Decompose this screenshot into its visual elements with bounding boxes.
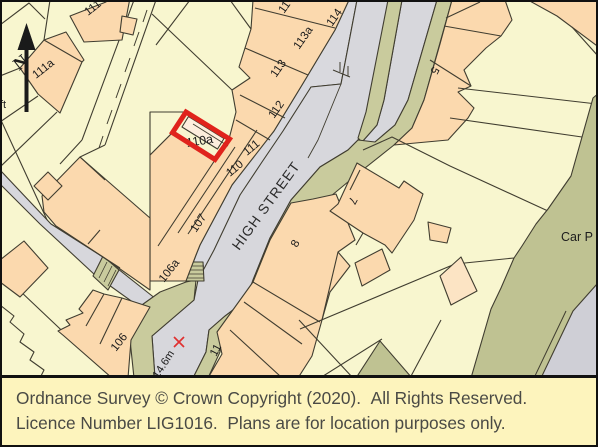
svg-text:Licence Number LIG1016. Plans: Licence Number LIG1016. Plans are for lo… — [16, 413, 506, 433]
svg-text:Car P: Car P — [561, 230, 593, 244]
svg-text:Ordnance Survey © Crown Copyri: Ordnance Survey © Crown Copyright (2020)… — [16, 388, 527, 408]
